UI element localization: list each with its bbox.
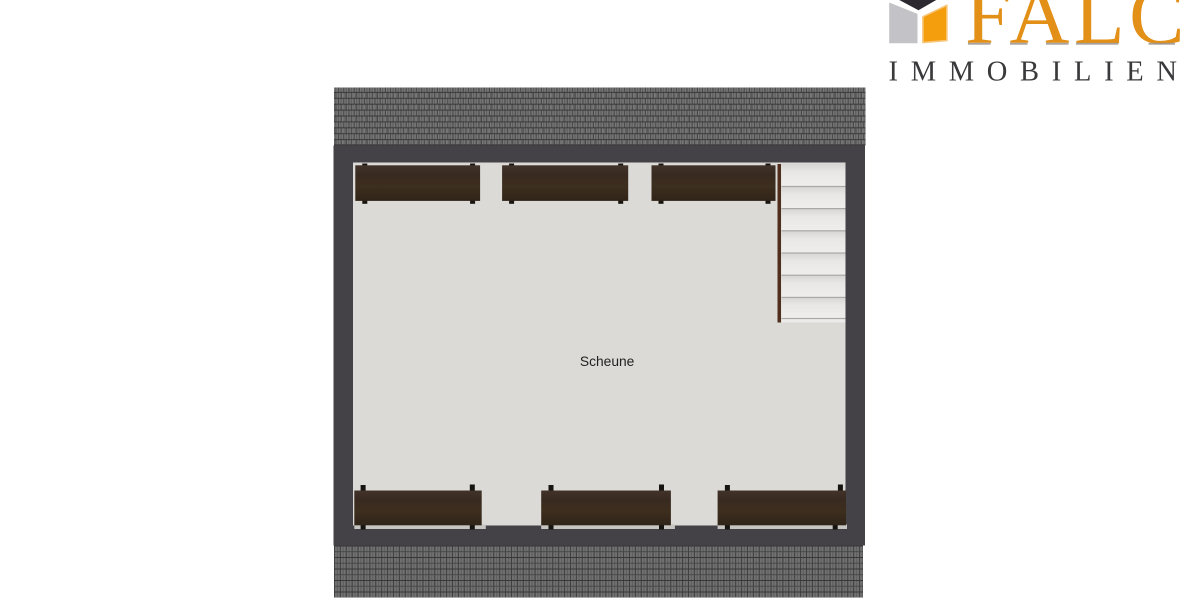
svg-text:FALC: FALC	[965, 0, 1189, 61]
svg-text:Scheune: Scheune	[580, 354, 635, 369]
svg-text:IMMOBILIEN: IMMOBILIEN	[889, 57, 1190, 88]
